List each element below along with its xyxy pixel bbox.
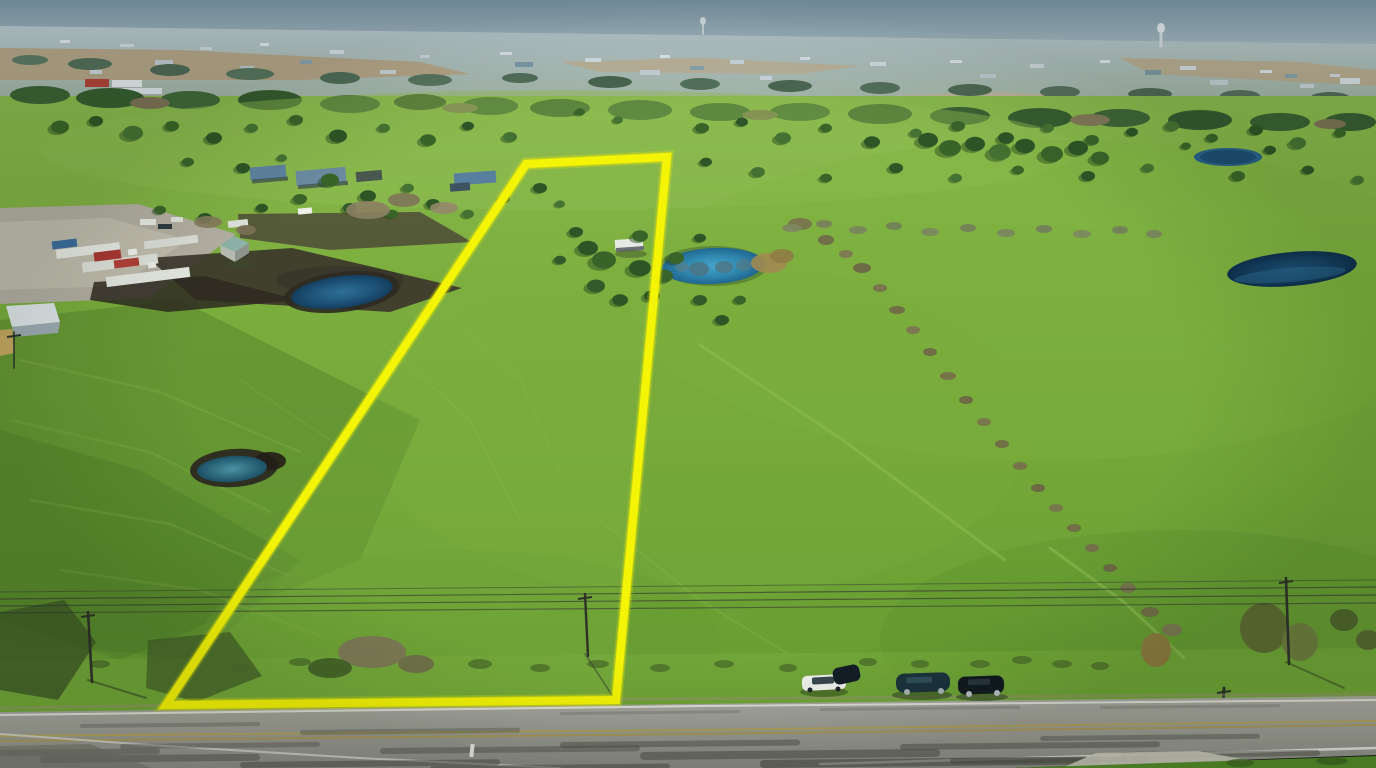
aerial-photo-canvas [0,0,1376,768]
vignette [0,0,1376,768]
aerial-photo [0,0,1376,768]
